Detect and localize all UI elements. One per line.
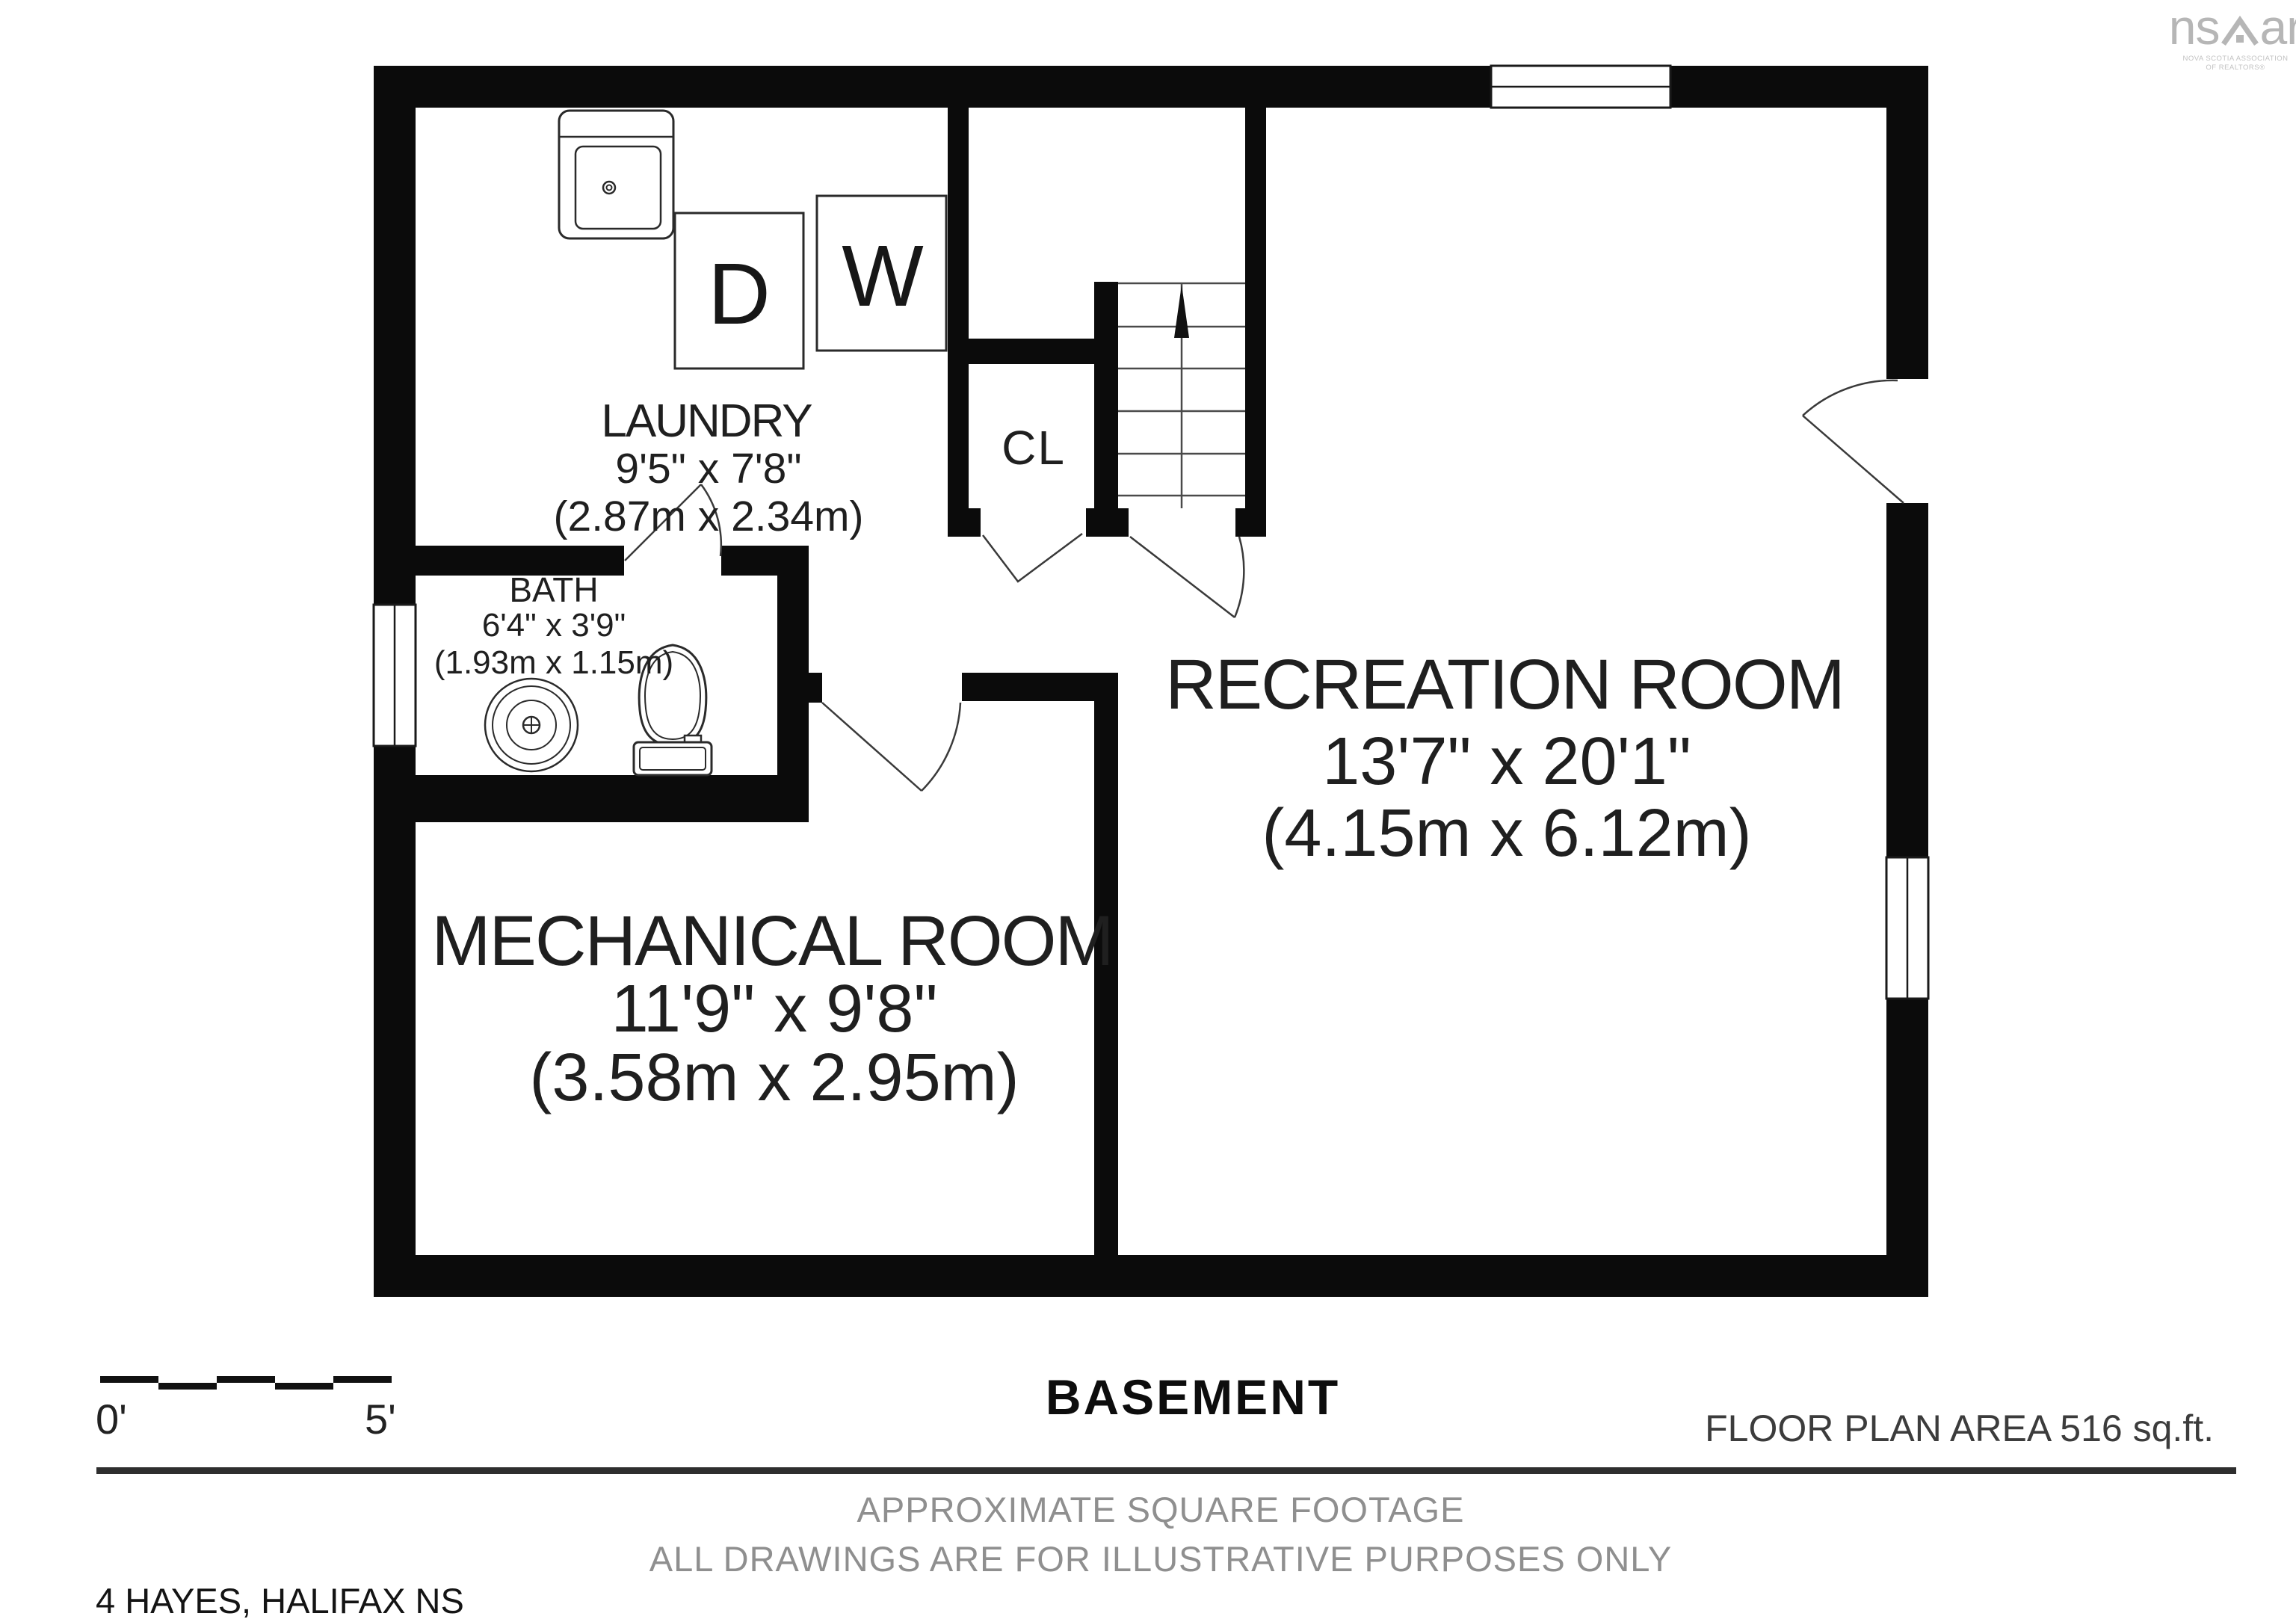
laundry-room-title: LAUNDRY <box>601 395 811 448</box>
dryer-label: D <box>708 244 771 344</box>
wall-left-upper <box>374 66 416 605</box>
bath-sink-icon <box>485 679 578 771</box>
wall-right-lower <box>1886 999 1928 1297</box>
bath-dims-imperial: 6'4" x 3'9" <box>482 607 626 644</box>
scale-end-label: 5' <box>365 1395 396 1443</box>
wall-bath-top-right <box>721 546 809 576</box>
logo-subtext-line2: OF REALTORS® <box>2164 64 2296 73</box>
floor-plan-area-label: FLOOR PLAN AREA 516 sq.ft. <box>1705 1407 2214 1450</box>
door-stairs <box>1130 537 1244 617</box>
wall-stair-center-jamb <box>1086 508 1129 537</box>
logo-subtext-line1: NOVA SCOTIA ASSOCIATION <box>2164 55 2296 64</box>
door-mechanical <box>822 703 960 791</box>
wall-laundry-right-jamb <box>948 508 981 537</box>
disclaimer-line1: APPROXIMATE SQUARE FOOTAGE <box>857 1489 1465 1530</box>
wall-top-left <box>374 66 1491 108</box>
floor-title: BASEMENT <box>1046 1369 1340 1425</box>
closet-label: CL <box>1002 420 1066 475</box>
laundry-dims-imperial: 9'5" x 7'8" <box>615 444 801 493</box>
door-entry-right <box>1803 380 1904 503</box>
bath-dims-metric: (1.93m x 1.15m) <box>434 644 673 682</box>
mechanical-dims-imperial: 11'9" x 9'8" <box>611 971 938 1048</box>
disclaimer-line2: ALL DRAWINGS ARE FOR ILLUSTRATIVE PURPOS… <box>649 1538 1673 1579</box>
wall-right-upper <box>1886 66 1928 379</box>
logo-roof-icon <box>2221 14 2259 47</box>
wall-mech-top <box>962 673 1094 701</box>
wall-closet-top <box>948 339 1094 364</box>
laundry-sink-icon <box>559 111 673 238</box>
scale-start-label: 0' <box>96 1395 127 1443</box>
recreation-dims-imperial: 13'7" x 20'1" <box>1322 724 1691 801</box>
laundry-dims-metric: (2.87m x 2.34m) <box>554 492 864 541</box>
door-closet <box>983 534 1082 582</box>
window-top <box>1491 66 1670 108</box>
footer-divider-line <box>96 1467 2236 1474</box>
wall-stair-center <box>1094 282 1118 508</box>
wall-left-lower <box>374 746 416 1297</box>
wall-stair-right-jamb <box>1235 508 1266 537</box>
floor-plan-page: LAUNDRY 9'5" x 7'8" (2.87m x 2.34m) BATH… <box>0 0 2296 1622</box>
wall-mech-door-stub <box>809 673 822 703</box>
wall-laundry-right <box>948 108 969 508</box>
washer-label: W <box>842 226 924 326</box>
recreation-room-title: RECREATION ROOM <box>1165 644 1844 726</box>
recreation-dims-metric: (4.15m x 6.12m) <box>1262 795 1751 872</box>
mechanical-dims-metric: (3.58m x 2.95m) <box>529 1040 1019 1117</box>
scale-bar <box>100 1376 392 1390</box>
window-right-rec <box>1886 857 1928 999</box>
bath-room-title: BATH <box>509 570 598 610</box>
logo-text-right: ar <box>2260 7 2296 47</box>
window-left-bath <box>374 605 416 746</box>
wall-bottom <box>374 1255 1928 1297</box>
wall-right-mid <box>1886 503 1928 857</box>
stairs-up-arrow-icon <box>1174 285 1189 338</box>
wall-bath-right <box>777 574 809 775</box>
mechanical-room-title: MECHANICAL ROOM <box>431 901 1112 982</box>
wall-stair-right <box>1245 108 1266 508</box>
logo-text-left: ns <box>2169 7 2220 47</box>
nsar-logo: ns ar NOVA SCOTIA ASSOCIATION OF REALTOR… <box>2164 7 2296 73</box>
property-address: 4 HAYES, HALIFAX NS <box>96 1580 464 1621</box>
staircase <box>1118 283 1245 508</box>
wall-bath-bottom <box>374 775 809 822</box>
